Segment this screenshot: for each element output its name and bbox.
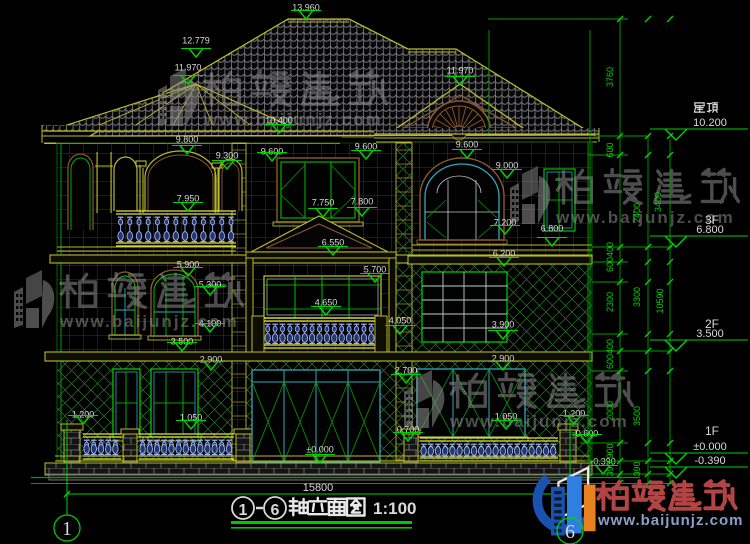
svg-text:15800: 15800 [303, 482, 334, 494]
svg-text:7.800: 7.800 [351, 197, 374, 207]
svg-text:3.500: 3.500 [696, 328, 724, 340]
svg-text:600: 600 [605, 142, 615, 157]
svg-text:2400: 2400 [632, 203, 642, 223]
svg-text:11.970: 11.970 [175, 63, 202, 73]
svg-text:4.050: 4.050 [389, 316, 412, 326]
svg-text:www.baijunjz.com: www.baijunjz.com [597, 512, 743, 529]
svg-text:3760: 3760 [605, 67, 615, 87]
svg-text:www.baijunjz.com: www.baijunjz.com [203, 110, 383, 129]
svg-text:±0.000: ±0.000 [693, 441, 727, 453]
svg-text:1F: 1F [705, 424, 719, 438]
svg-text:1.200: 1.200 [563, 409, 586, 419]
svg-text:1.200: 1.200 [72, 410, 95, 420]
svg-text:6.800: 6.800 [696, 224, 724, 236]
svg-text:3500: 3500 [632, 406, 642, 426]
svg-text:2000: 2000 [605, 401, 615, 421]
svg-text:6: 6 [565, 521, 575, 543]
svg-text:-0.390: -0.390 [694, 455, 725, 467]
svg-text:390: 390 [605, 461, 615, 476]
svg-text:7.750: 7.750 [312, 198, 335, 208]
svg-text:5.300: 5.300 [199, 280, 222, 290]
svg-text:10.200: 10.200 [693, 117, 727, 129]
svg-text:www.baijunjz.com: www.baijunjz.com [449, 412, 629, 431]
svg-text:6: 6 [271, 502, 280, 519]
svg-text:600400: 600400 [605, 339, 615, 369]
svg-text:3.900: 3.900 [492, 320, 515, 330]
svg-text:1: 1 [239, 502, 248, 519]
svg-text:1:100: 1:100 [373, 499, 416, 518]
svg-text:3.500: 3.500 [171, 337, 194, 347]
svg-text:11.970: 11.970 [447, 66, 474, 76]
svg-text:6.800: 6.800 [541, 224, 564, 234]
svg-text:9.300: 9.300 [216, 151, 239, 161]
svg-text:2.900: 2.900 [200, 355, 223, 365]
svg-text:12.779: 12.779 [182, 36, 210, 46]
svg-text:390: 390 [632, 461, 642, 476]
svg-text:3300: 3300 [632, 287, 642, 307]
svg-text:2300: 2300 [605, 292, 615, 312]
svg-text:0.600: 0.600 [576, 429, 599, 439]
svg-text:9.600: 9.600 [456, 140, 479, 150]
svg-text:±0.000: ±0.000 [306, 445, 333, 455]
svg-text:3400: 3400 [653, 192, 663, 212]
svg-text:1: 1 [62, 518, 72, 540]
svg-text:9.800: 9.800 [176, 135, 199, 145]
svg-text:9.600: 9.600 [261, 147, 284, 157]
svg-text:900: 900 [605, 443, 615, 458]
svg-text:600400: 600400 [605, 242, 615, 272]
svg-text:10590: 10590 [655, 288, 665, 313]
